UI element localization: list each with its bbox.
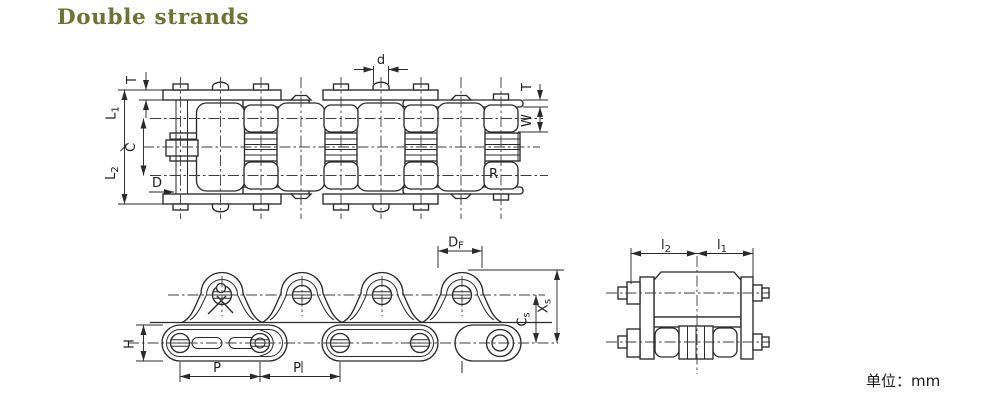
dim-label-R: R — [489, 167, 498, 182]
link-body — [654, 272, 741, 317]
dim-label-D: D — [152, 176, 162, 191]
dim-label-l1: l1 — [717, 238, 727, 255]
top-view-double-strand-chain: T L1 L2 C D d — [104, 53, 548, 219]
section-rollers — [655, 326, 737, 359]
dim-label-P2: P — [293, 361, 301, 376]
dim-label-P1: P — [213, 361, 221, 376]
dim-label-W: W — [520, 114, 535, 127]
dim-label-Xs: Xs — [537, 299, 554, 313]
dim-label-Cs: Cs — [516, 312, 533, 326]
dim-label-L2: L2 — [104, 166, 121, 180]
technical-drawing: T L1 L2 C D d — [0, 0, 1000, 411]
side-view-chain: H P P DF Xs Cs — [123, 236, 565, 383]
dim-label-l2: l2 — [661, 238, 671, 255]
dim-label-T-right: T — [520, 83, 535, 92]
dim-label-C: C — [124, 143, 139, 152]
dim-label-d: d — [377, 53, 385, 68]
dim-label-T-left: T — [125, 76, 140, 85]
dim-label-DF: DF — [448, 236, 464, 252]
dim-label-H: H — [123, 339, 138, 349]
dim-label-L1: L1 — [105, 106, 122, 120]
right-plate — [741, 277, 753, 359]
cross-section-view: l2 l1 — [606, 238, 770, 374]
left-plate — [640, 277, 654, 359]
catalog-page: Double strands 单位：mm — [0, 0, 1000, 411]
